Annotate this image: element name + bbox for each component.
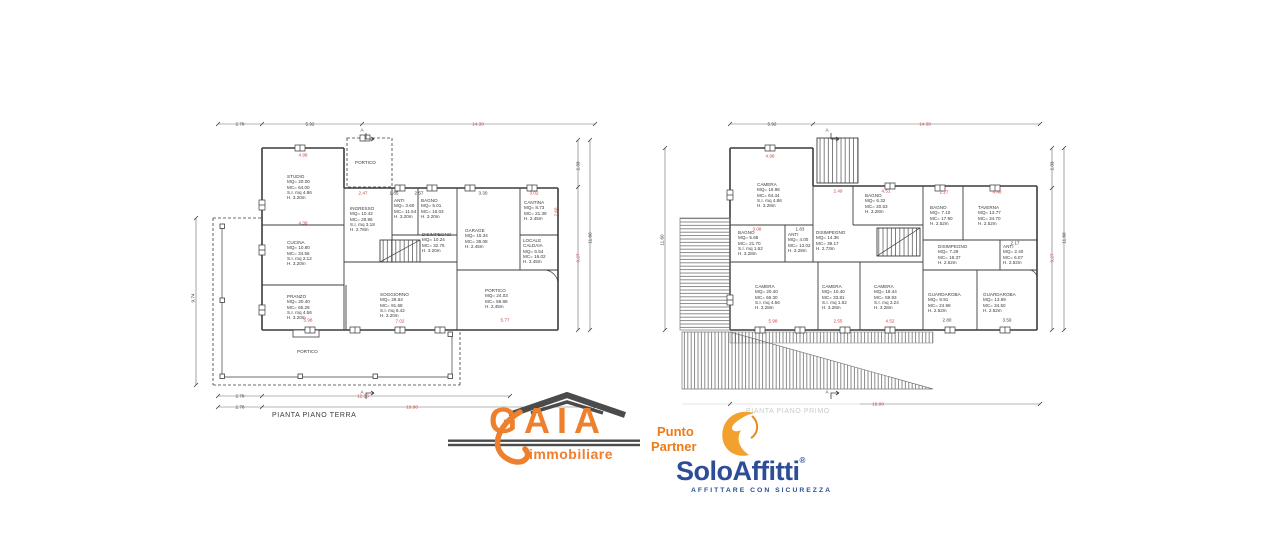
punto-partner-line2: Partner bbox=[651, 439, 697, 454]
gaia-logo-text: GAIA bbox=[452, 400, 644, 442]
soloaffitti-logo-text: SoloAffitti® bbox=[676, 456, 805, 487]
soloaffitti-bird-icon bbox=[722, 412, 757, 456]
punto-partner-line1: Punto bbox=[657, 424, 694, 439]
gaia-logo-subtitle: immobiliare bbox=[500, 446, 642, 462]
registered-mark: ® bbox=[799, 456, 804, 465]
soloaffitti-wordmark: SoloAffitti bbox=[676, 456, 799, 486]
soloaffitti-tagline: AFFITTARE CON SICUREZZA bbox=[691, 487, 832, 494]
floor-plan-page: STUDIO MQ= 20.00 MC= 64.00 S.I. mq 4.86 … bbox=[0, 0, 1280, 539]
